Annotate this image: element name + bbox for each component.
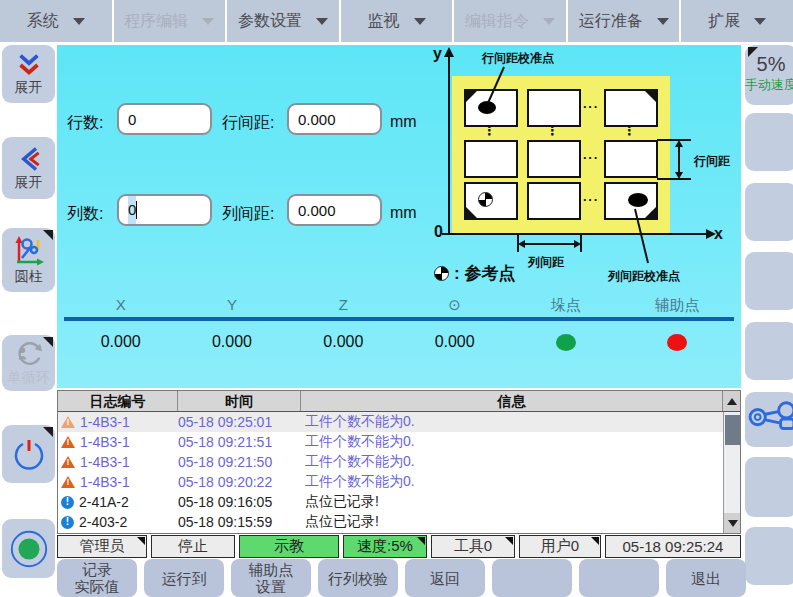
exit-button[interactable]: 退出: [666, 559, 746, 597]
run-state-cell[interactable]: 停止: [151, 535, 235, 558]
user-frame-cell[interactable]: 用户0: [519, 535, 601, 558]
rows-count-label: 行数:: [67, 113, 103, 134]
double-chevron-left-icon: [15, 145, 43, 173]
row-pitch-unit: mm: [390, 113, 417, 131]
mode-cell[interactable]: 示教: [239, 535, 339, 558]
cols-count-label: 列数:: [67, 204, 103, 225]
col-pitch-input[interactable]: [287, 194, 382, 226]
menu-system[interactable]: 系统: [0, 0, 114, 42]
chevron-down-icon: [754, 18, 766, 25]
row-pitch-input[interactable]: [287, 103, 382, 135]
datetime-label: 05-18 09:25:24: [623, 538, 724, 555]
submenu-corner-icon: [505, 537, 513, 545]
cols-count-input[interactable]: 0: [117, 194, 212, 226]
rows-count-input[interactable]: [117, 103, 212, 135]
submenu-corner-icon: [137, 537, 145, 545]
triangle-down-icon: [728, 520, 738, 527]
reference-point-icon: [434, 266, 449, 281]
log-header-row: 日志编号 时间 信息: [58, 391, 740, 412]
run-to-button[interactable]: 运行到: [144, 559, 224, 597]
warning-icon: [61, 476, 75, 488]
row-calibration-label: 行间距校准点: [482, 50, 554, 67]
coord-value-x: 0.000: [65, 325, 176, 359]
row-col-verify-button[interactable]: 行列校验: [318, 559, 398, 597]
log-cell-id: 1-4B3-1: [80, 454, 130, 470]
log-header-id: 日志编号: [58, 391, 178, 411]
warning-icon: [61, 436, 75, 448]
log-cell-id: 2-403-2: [79, 514, 127, 530]
chevron-down-icon: [202, 18, 214, 25]
single-cycle-icon: [14, 340, 44, 368]
submenu-corner-icon: [417, 537, 425, 545]
log-row[interactable]: 2-41A-2 05-18 09:15:47 点位已记录!: [58, 532, 740, 534]
chevron-down-icon: [657, 18, 669, 25]
scrollbar-up-button[interactable]: [723, 391, 740, 411]
chevron-down-icon: [73, 18, 85, 25]
col-pitch-label: 列间距:: [222, 204, 274, 225]
run-state-label: 停止: [178, 537, 208, 556]
col-pitch-dim-label: 列间距: [528, 254, 564, 271]
coordinate-readout: X Y Z ⊙ 垛点 辅助点: [57, 293, 741, 317]
menu-parameter-settings-label: 参数设置: [238, 11, 302, 32]
expand-left-button[interactable]: 展开: [2, 137, 55, 199]
empty-button-1[interactable]: [492, 559, 572, 597]
expand-down-label: 展开: [15, 79, 43, 97]
menu-edit-instruction-label: 编辑指令: [465, 11, 529, 32]
record-start-button[interactable]: [2, 519, 55, 578]
scrollbar-thumb[interactable]: [725, 415, 740, 445]
log-row[interactable]: 2-403-2 05-18 09:15:59 点位已记录!: [58, 512, 740, 532]
reference-point-legend: : 参考点: [434, 262, 515, 285]
divider-line: [64, 317, 734, 321]
scrollbar-down-button[interactable]: [724, 513, 740, 533]
log-header-message: 信息: [301, 391, 723, 411]
mode-label: 示教: [274, 537, 304, 556]
submenu-corner-icon: [43, 427, 53, 437]
triangle-up-icon: [727, 398, 737, 405]
manual-speed-button[interactable]: 5% 手动速度: [745, 45, 793, 105]
log-cell-message: 工件个数不能为0.: [301, 473, 740, 491]
cylinder-label: 圆柱: [15, 268, 43, 286]
col-pitch-unit: mm: [390, 204, 417, 222]
robot-arm-icon: [747, 398, 793, 440]
warning-icon: [61, 456, 75, 468]
coord-header-stack-point: 垛点: [510, 293, 621, 317]
log-cell-time: 05-18 09:25:01: [178, 414, 301, 430]
speed-cell[interactable]: 速度:5%: [343, 535, 427, 558]
log-cell-id: 1-4B3-1: [80, 414, 130, 430]
coord-header-aux-point: 辅助点: [622, 293, 733, 317]
coord-header-x: X: [65, 293, 176, 317]
submenu-corner-icon: [43, 337, 53, 347]
col-calibration-label: 列间距校准点: [608, 268, 680, 285]
submenu-corner-icon: [591, 537, 599, 545]
chevron-down-icon: [414, 18, 426, 25]
menu-monitor[interactable]: 监视: [341, 0, 455, 42]
log-cell-time: 05-18 09:21:50: [178, 454, 301, 470]
warning-icon: [61, 416, 75, 428]
log-row[interactable]: 1-4B3-1 05-18 09:21:50 工件个数不能为0.: [58, 452, 740, 472]
menu-parameter-settings[interactable]: 参数设置: [227, 0, 341, 42]
log-cell-message: 点位已记录!: [301, 533, 740, 534]
user-level-cell[interactable]: 管理员: [57, 535, 147, 558]
coord-value-y: 0.000: [176, 325, 287, 359]
record-actual-value-button[interactable]: 记录 实际值: [57, 559, 137, 597]
log-cell-id: 2-41A-2: [79, 494, 129, 510]
record-circle-icon: [8, 528, 50, 570]
info-icon: [61, 516, 74, 529]
menu-program-edit-label: 程序编辑: [124, 11, 188, 32]
status-bar: 管理员 停止 示教 速度:5% 工具0 用户0 05-18 09:25:24: [57, 535, 741, 558]
info-icon: [61, 496, 74, 509]
log-cell-time: 05-18 09:21:51: [178, 434, 301, 450]
submenu-corner-icon: [43, 230, 53, 240]
pallet-settings-panel: 行数: 行间距: mm 列数: 0 列间距: mm y x 0: [57, 45, 741, 388]
log-header-time: 时间: [178, 391, 301, 411]
user-level-label: 管理员: [80, 537, 125, 556]
right-sidebar-button-7[interactable]: [745, 457, 793, 517]
right-sidebar-button-5[interactable]: [745, 322, 793, 380]
coordinate-values: 0.000 0.000 0.000 0.000: [57, 325, 741, 359]
tool-cell[interactable]: 工具0: [431, 535, 515, 558]
log-cell-id: 1-4B3-1: [80, 474, 130, 490]
datetime-cell: 05-18 09:25:24: [605, 535, 741, 558]
log-row[interactable]: 1-4B3-1 05-18 09:21:51 工件个数不能为0.: [58, 432, 740, 452]
expand-left-label: 展开: [15, 174, 43, 192]
back-button[interactable]: 返回: [405, 559, 485, 597]
menu-program-edit: 程序编辑: [114, 0, 228, 42]
single-cycle-button: 单循环: [2, 335, 55, 391]
log-cell-time: 05-18 09:16:05: [178, 494, 301, 510]
coord-header-z: Z: [288, 293, 399, 317]
menu-extension-label: 扩展: [708, 11, 740, 32]
log-cell-id: 1-4B3-1: [80, 434, 130, 450]
right-sidebar-button-3[interactable]: [745, 183, 793, 241]
empty-button-2[interactable]: [579, 559, 659, 597]
log-row[interactable]: 1-4B3-1 05-18 09:20:22 工件个数不能为0.: [58, 472, 740, 492]
reference-point-legend-label: : 参考点: [454, 262, 515, 285]
right-sidebar-button-4[interactable]: [745, 252, 793, 310]
row-pitch-label: 行间距:: [222, 113, 274, 134]
bottom-button-bar: 记录 实际值 运行到 辅助点 设置 行列校验 返回 退出: [57, 559, 793, 597]
log-cell-time: 05-18 09:20:22: [178, 474, 301, 490]
log-row[interactable]: 1-4B3-1 05-18 09:25:01 工件个数不能为0.: [58, 412, 740, 432]
menu-run-prepare[interactable]: 运行准备: [568, 0, 682, 42]
coord-value-z: 0.000: [288, 325, 399, 359]
menu-edit-instruction: 编辑指令: [454, 0, 568, 42]
submenu-corner-icon: [748, 47, 758, 57]
log-cell-message: 工件个数不能为0.: [301, 413, 740, 431]
log-cell-message: 工件个数不能为0.: [301, 453, 740, 471]
coord-header-rot: ⊙: [399, 293, 510, 317]
coord-header-y: Y: [176, 293, 287, 317]
text-cursor: [136, 201, 137, 219]
robot-jog-button[interactable]: [745, 392, 793, 447]
log-cell-message: 点位已记录!: [301, 493, 740, 511]
robot-axes-icon: [13, 235, 45, 267]
menu-extension[interactable]: 扩展: [681, 0, 793, 42]
aux-point-settings-button[interactable]: 辅助点 设置: [231, 559, 311, 597]
log-cell-message: 工件个数不能为0.: [301, 433, 740, 451]
coord-value-rot: 0.000: [399, 325, 510, 359]
log-row[interactable]: 2-41A-2 05-18 09:16:05 点位已记录!: [58, 492, 740, 512]
double-chevron-down-icon: [14, 52, 44, 78]
chevron-down-icon: [316, 18, 328, 25]
menu-run-prepare-label: 运行准备: [579, 11, 643, 32]
power-button[interactable]: [2, 425, 55, 483]
tool-label: 工具0: [454, 537, 492, 556]
log-panel: 日志编号 时间 信息 1-4B3-1 05-18 09:25:01 工件个数不能…: [57, 390, 741, 534]
row-pitch-dim-label: 行间距: [694, 153, 730, 170]
log-cell-time: 05-18 09:15:59: [178, 514, 301, 530]
cols-count-value: 0: [128, 196, 136, 224]
log-scrollbar[interactable]: [723, 412, 740, 533]
menu-monitor-label: 监视: [368, 11, 400, 32]
expand-down-button[interactable]: 展开: [2, 45, 55, 103]
cylinder-coord-button[interactable]: 圆柱: [2, 228, 55, 292]
top-menu-bar: 系统 程序编辑 参数设置 监视 编辑指令 运行准备 扩展: [0, 0, 793, 42]
menu-system-label: 系统: [27, 11, 59, 32]
user-frame-label: 用户0: [541, 537, 579, 556]
chevron-down-icon: [543, 18, 555, 25]
log-cell-message: 点位已记录!: [301, 513, 740, 531]
stack-point-status-dot: [556, 334, 576, 351]
speed-label: 速度:5%: [357, 537, 413, 556]
power-icon: [12, 437, 46, 471]
single-cycle-label: 单循环: [8, 369, 50, 387]
pallet-diagram: y x 0 ⋮ ⋮ ⋮ ··· ···: [432, 47, 741, 285]
aux-point-status-dot: [667, 334, 687, 351]
manual-speed-label: 手动速度: [745, 76, 793, 94]
right-sidebar-button-2[interactable]: [745, 113, 793, 171]
